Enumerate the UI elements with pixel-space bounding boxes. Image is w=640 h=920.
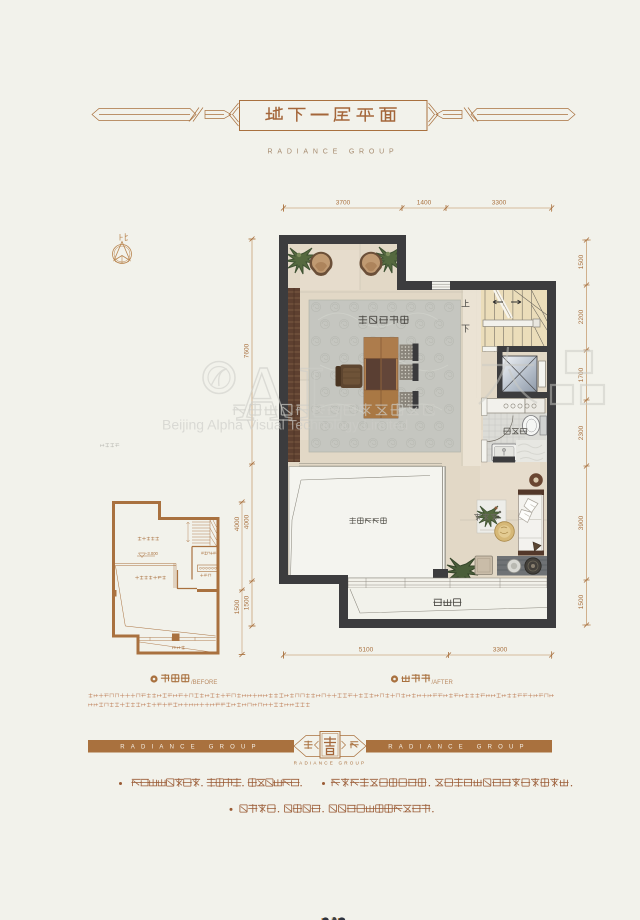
svg-text:4000: 4000 [234,516,241,531]
svg-text:3300: 3300 [492,200,507,207]
svg-text:2300: 2300 [578,425,585,440]
svg-text:3300: 3300 [493,647,508,654]
svg-text:1500: 1500 [578,254,585,269]
svg-text:-3.000: -3.000 [146,551,159,556]
svg-text:2200: 2200 [578,309,585,324]
svg-text:RADIANCE GROUP: RADIANCE GROUP [294,761,367,766]
svg-text:4000: 4000 [244,514,251,529]
svg-text:1400: 1400 [417,200,432,207]
svg-text:RADIANCE GROUP: RADIANCE GROUP [388,745,529,751]
svg-text:3900: 3900 [578,515,585,530]
svg-text:RADIANCE GROUP: RADIANCE GROUP [268,149,399,156]
svg-text:RADIANCE GROUP: RADIANCE GROUP [120,745,261,751]
svg-text:1500: 1500 [234,599,241,614]
svg-text:/AFTER: /AFTER [432,680,454,686]
svg-text:Beijing Alpha Visual Technolog: Beijing Alpha Visual Technology Limited [162,417,408,433]
svg-text:1700: 1700 [578,367,585,382]
svg-text:1500: 1500 [244,595,251,610]
svg-text:/BEFORE: /BEFORE [191,680,217,686]
svg-text:1500: 1500 [578,594,585,609]
svg-text:5100: 5100 [359,647,374,654]
svg-text:3700: 3700 [336,200,351,207]
